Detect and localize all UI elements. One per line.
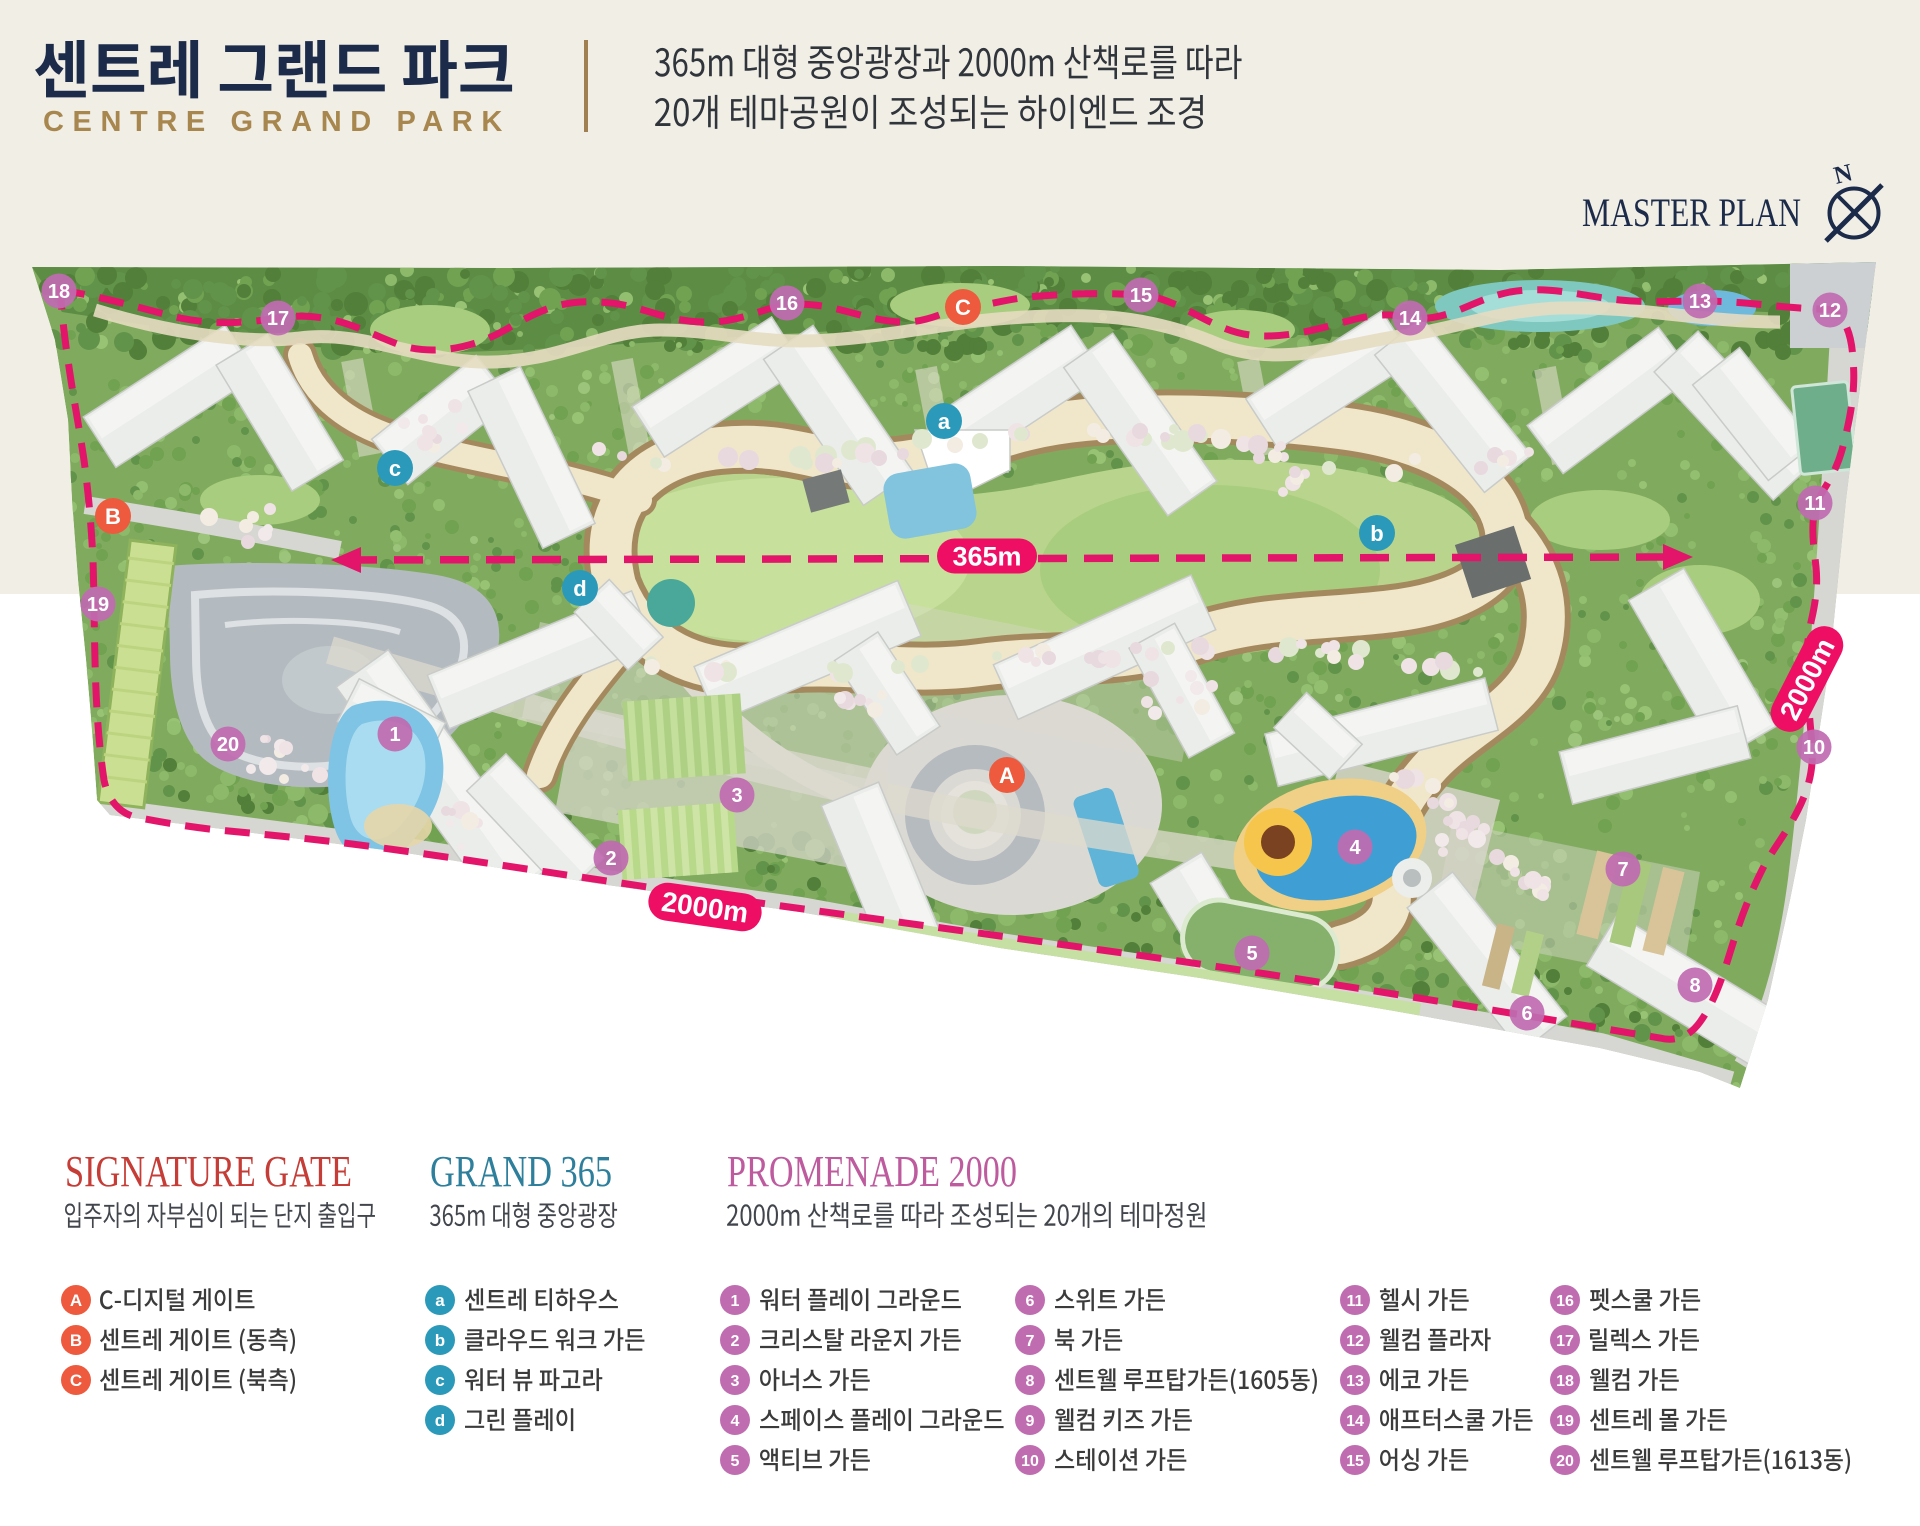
svg-text:11: 11	[1804, 493, 1825, 515]
svg-text:C: C	[70, 1371, 82, 1390]
svg-text:12: 12	[1819, 300, 1841, 322]
svg-text:2: 2	[731, 1333, 740, 1350]
svg-text:17: 17	[267, 308, 289, 330]
svg-text:3: 3	[731, 1373, 740, 1390]
svg-text:1: 1	[389, 724, 400, 746]
svg-text:18: 18	[1556, 1373, 1574, 1390]
svg-text:4: 4	[731, 1413, 740, 1430]
svg-text:A: A	[999, 763, 1015, 788]
svg-text:B: B	[105, 504, 121, 529]
svg-text:C: C	[955, 295, 971, 320]
svg-text:c: c	[389, 456, 401, 481]
svg-text:8: 8	[1026, 1373, 1035, 1390]
svg-text:365m: 365m	[952, 541, 1021, 571]
svg-text:GRAND 365: GRAND 365	[430, 1147, 612, 1196]
svg-text:10: 10	[1021, 1453, 1039, 1470]
svg-text:19: 19	[1556, 1413, 1574, 1430]
svg-text:SIGNATURE GATE: SIGNATURE GATE	[65, 1147, 352, 1196]
svg-text:4: 4	[1349, 837, 1361, 859]
svg-text:6: 6	[1026, 1293, 1035, 1310]
svg-text:2: 2	[605, 848, 616, 870]
svg-text:b: b	[1370, 521, 1383, 546]
svg-text:1: 1	[731, 1293, 740, 1310]
svg-text:20: 20	[1556, 1453, 1574, 1470]
svg-text:13: 13	[1346, 1373, 1364, 1390]
svg-text:11: 11	[1347, 1293, 1364, 1310]
svg-text:18: 18	[48, 281, 70, 303]
svg-text:20: 20	[217, 734, 239, 756]
svg-text:b: b	[435, 1331, 445, 1350]
svg-text:6: 6	[1521, 1003, 1532, 1025]
svg-text:10: 10	[1803, 737, 1825, 759]
svg-text:d: d	[435, 1411, 445, 1430]
svg-text:7: 7	[1617, 859, 1628, 881]
svg-text:7: 7	[1026, 1333, 1035, 1350]
svg-text:CENTRE GRAND PARK: CENTRE GRAND PARK	[43, 106, 511, 138]
svg-text:5: 5	[1246, 943, 1257, 965]
svg-text:15: 15	[1130, 285, 1152, 307]
svg-text:16: 16	[776, 293, 798, 315]
svg-text:14: 14	[1399, 308, 1422, 330]
svg-text:d: d	[573, 576, 586, 601]
svg-text:A: A	[70, 1291, 82, 1310]
svg-text:13: 13	[1689, 291, 1711, 313]
svg-text:a: a	[435, 1291, 445, 1310]
svg-text:9: 9	[1026, 1413, 1035, 1430]
svg-text:a: a	[938, 409, 951, 434]
svg-text:PROMENADE 2000: PROMENADE 2000	[727, 1147, 1017, 1196]
svg-text:B: B	[70, 1331, 82, 1350]
svg-text:15: 15	[1346, 1453, 1364, 1470]
svg-text:8: 8	[1689, 975, 1700, 997]
svg-text:17: 17	[1556, 1333, 1574, 1350]
svg-text:MASTER PLAN: MASTER PLAN	[1582, 190, 1801, 235]
svg-text:12: 12	[1346, 1333, 1364, 1350]
svg-text:c: c	[435, 1371, 444, 1390]
svg-text:19: 19	[87, 594, 109, 616]
svg-text:3: 3	[731, 785, 742, 807]
svg-text:14: 14	[1346, 1413, 1364, 1430]
svg-text:5: 5	[731, 1453, 740, 1470]
svg-text:16: 16	[1556, 1293, 1574, 1310]
